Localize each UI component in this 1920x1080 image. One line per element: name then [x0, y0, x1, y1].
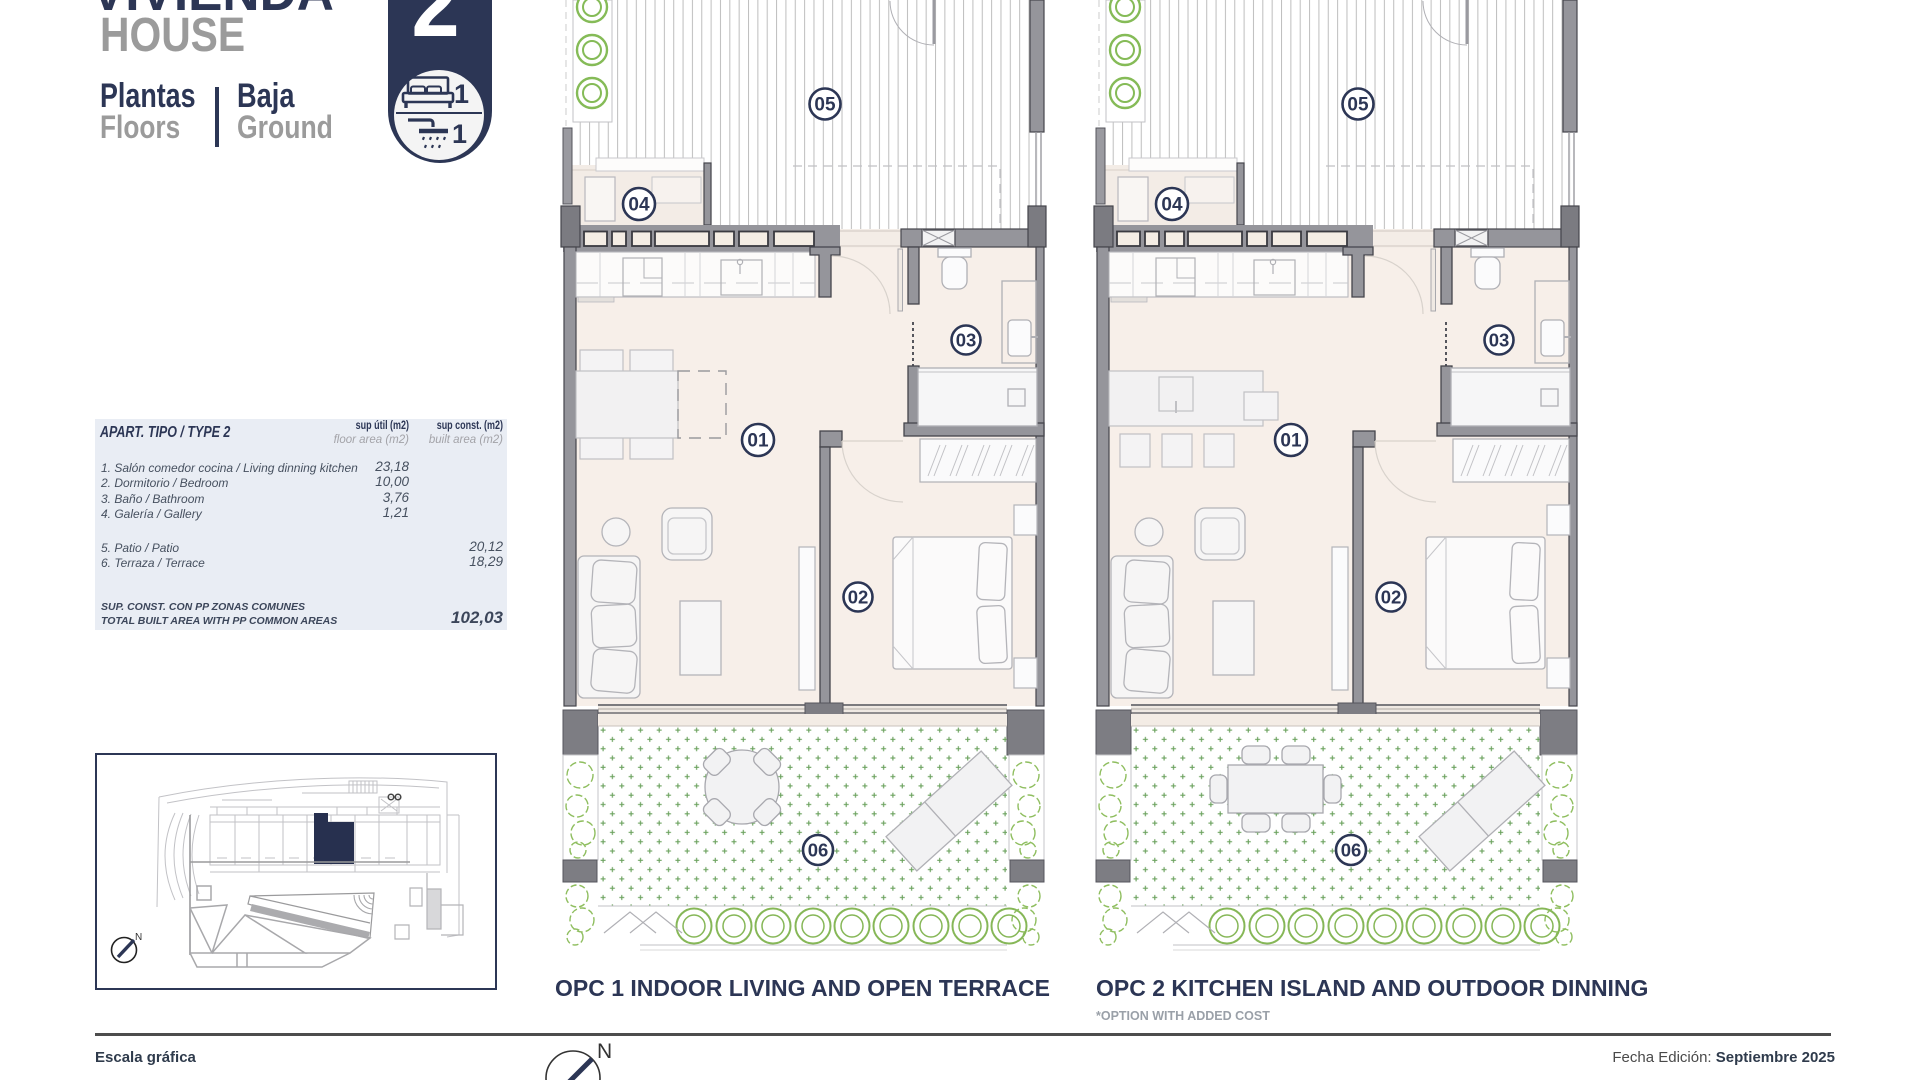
svg-text:01: 01 [747, 431, 769, 452]
svg-text:N: N [597, 1040, 612, 1063]
svg-text:04: 04 [628, 195, 650, 216]
svg-text:06: 06 [808, 840, 829, 861]
svg-text:02: 02 [848, 587, 869, 608]
svg-text:05: 05 [814, 95, 836, 116]
svg-text:03: 03 [956, 330, 977, 351]
